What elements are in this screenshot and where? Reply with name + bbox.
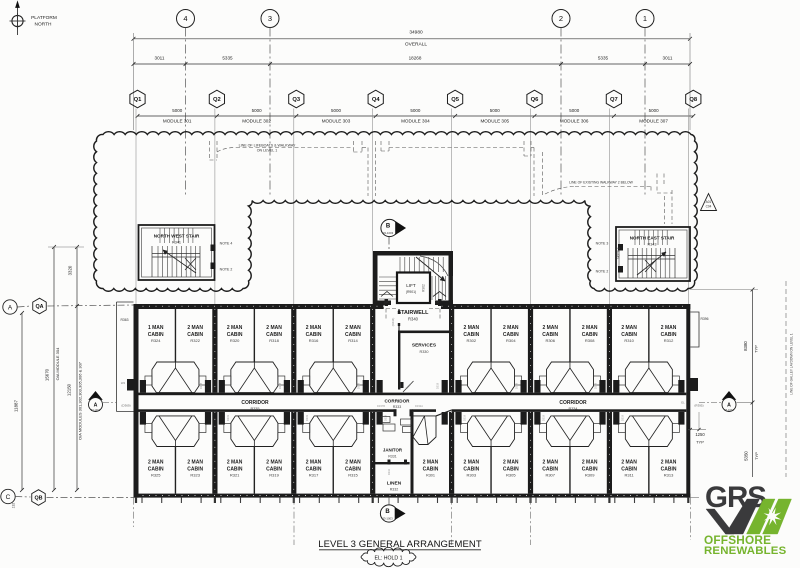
svg-text:CABIN: CABIN [503, 332, 519, 338]
svg-text:CABIN: CABIN [582, 332, 598, 338]
svg-text:CABIN: CABIN [463, 466, 479, 472]
svg-text:15670: 15670 [45, 368, 50, 381]
svg-text:R314: R314 [348, 338, 358, 343]
svg-text:2 MAN: 2 MAN [266, 460, 282, 466]
svg-text:R316: R316 [309, 338, 319, 343]
svg-text:R331: R331 [388, 455, 397, 459]
svg-text:ON LEVEL 1: ON LEVEL 1 [257, 149, 277, 153]
svg-text:W4: W4 [121, 381, 126, 385]
svg-text:MODULE 304: MODULE 304 [401, 119, 430, 124]
svg-text:CORRIDOR: CORRIDOR [241, 400, 269, 406]
svg-text:D337B: D337B [377, 404, 385, 408]
svg-text:C: C [6, 494, 11, 501]
svg-text:Q4: Q4 [372, 97, 381, 103]
svg-text:R303: R303 [467, 473, 477, 478]
svg-text:5000: 5000 [331, 108, 342, 113]
svg-text:CABIN: CABIN [306, 466, 322, 472]
svg-text:LINE OF EXISTING WALKWAY 2 BEL: LINE OF EXISTING WALKWAY 2 BELOW [569, 181, 633, 185]
svg-text:NORTH EAST STAIR: NORTH EAST STAIR [630, 236, 675, 241]
svg-text:CABIN: CABIN [503, 466, 519, 472]
svg-text:5350: 5350 [744, 451, 749, 461]
svg-text:PLATFORM: PLATFORM [31, 15, 57, 21]
svg-text:A01: A01 [706, 200, 712, 204]
svg-text:R333: R333 [393, 405, 402, 409]
svg-text:R323: R323 [190, 473, 200, 478]
svg-text:R902: R902 [422, 284, 426, 292]
svg-text:2: 2 [559, 14, 563, 23]
svg-text:2 MAN: 2 MAN [503, 325, 519, 331]
svg-text:R308: R308 [585, 338, 595, 343]
svg-text:R332: R332 [390, 488, 399, 492]
svg-text:2 MAN: 2 MAN [621, 460, 637, 466]
svg-text:R312: R312 [664, 338, 674, 343]
svg-text:R324: R324 [151, 338, 161, 343]
svg-text:C04: C04 [706, 205, 712, 209]
svg-text:NOTE 1: NOTE 1 [617, 247, 621, 259]
svg-text:CABIN: CABIN [463, 332, 479, 338]
svg-text:R340: R340 [408, 317, 419, 322]
svg-text:MODULE 305: MODULE 305 [480, 119, 509, 124]
svg-text:R325: R325 [151, 473, 161, 478]
svg-text:3011: 3011 [663, 56, 673, 61]
svg-text:2 MAN: 2 MAN [542, 325, 558, 331]
svg-text:NORTH: NORTH [35, 22, 53, 28]
svg-text:2 MAN: 2 MAN [464, 325, 480, 331]
svg-text:R306: R306 [545, 338, 555, 343]
svg-text:O/A MODULE 304: O/A MODULE 304 [55, 347, 60, 380]
svg-text:CABIN: CABIN [542, 466, 558, 472]
svg-text:2 MAN: 2 MAN [227, 325, 243, 331]
svg-text:R319: R319 [269, 473, 279, 478]
svg-text:SERVICES: SERVICES [412, 343, 437, 349]
svg-text:R301: R301 [426, 474, 435, 478]
svg-text:3011: 3011 [155, 56, 165, 61]
svg-text:Q5: Q5 [451, 97, 460, 103]
svg-text:R322: R322 [190, 338, 200, 343]
svg-text:CABIN: CABIN [266, 466, 282, 472]
svg-text:33-1003: 33-1003 [382, 517, 393, 521]
svg-text:132: 132 [12, 503, 16, 509]
svg-text:D319: D319 [305, 414, 309, 421]
svg-text:5335: 5335 [598, 56, 609, 61]
svg-text:5335: 5335 [222, 56, 233, 61]
svg-text:R396: R396 [700, 317, 708, 321]
svg-text:2 MAN: 2 MAN [148, 460, 164, 466]
svg-text:MODULE 301: MODULE 301 [163, 119, 192, 124]
svg-text:JANITOR: JANITOR [383, 448, 403, 453]
svg-text:5000: 5000 [569, 108, 580, 113]
svg-text:R335: R335 [250, 407, 259, 411]
svg-text:Q7: Q7 [610, 97, 618, 103]
svg-text:Q1: Q1 [134, 97, 143, 103]
svg-text:D319: D319 [384, 414, 388, 421]
svg-text:D318: D318 [199, 382, 203, 389]
svg-text:R315: R315 [348, 473, 358, 478]
svg-text:D318: D318 [278, 382, 282, 389]
svg-text:NOTE 2: NOTE 2 [596, 270, 609, 274]
svg-text:R363: R363 [120, 318, 128, 322]
svg-text:CABIN: CABIN [187, 466, 203, 472]
svg-text:D318: D318 [593, 382, 597, 389]
svg-text:LINE OF LIFEBOATS & WALKWAY: LINE OF LIFEBOATS & WALKWAY [239, 144, 296, 148]
svg-text:2 MAN: 2 MAN [661, 460, 677, 466]
svg-text:Q3: Q3 [292, 97, 301, 103]
svg-text:(D369): (D369) [121, 404, 130, 408]
svg-text:33-1003: 33-1003 [383, 231, 394, 235]
svg-text:2 MAN: 2 MAN [187, 325, 203, 331]
svg-text:Q8: Q8 [689, 97, 698, 103]
svg-text:D318: D318 [436, 382, 440, 389]
svg-text:NOTE 3: NOTE 3 [596, 242, 609, 246]
svg-text:R302: R302 [467, 338, 477, 343]
svg-text:A: A [94, 403, 98, 409]
svg-text:(R395): (R395) [694, 404, 703, 408]
svg-text:MODULE 302: MODULE 302 [242, 119, 271, 124]
svg-text:R334: R334 [568, 407, 577, 411]
svg-text:R318: R318 [269, 338, 279, 343]
svg-text:R313: R313 [664, 473, 674, 478]
svg-text:2 MAN: 2 MAN [227, 460, 243, 466]
svg-text:CABIN: CABIN [621, 332, 637, 338]
svg-text:RENEWABLES: RENEWABLES [704, 545, 787, 557]
svg-text:33-1003: 33-1003 [724, 409, 734, 412]
svg-text:CABIN: CABIN [661, 332, 677, 338]
svg-text:CABIN: CABIN [423, 466, 439, 472]
svg-text:2 MAN: 2 MAN [582, 460, 598, 466]
svg-text:R341: R341 [172, 241, 181, 245]
svg-text:12150: 12150 [67, 383, 72, 396]
svg-text:R330: R330 [419, 350, 428, 354]
svg-text:LINEN: LINEN [387, 481, 402, 487]
svg-text:5000: 5000 [252, 108, 263, 113]
svg-text:CABIN: CABIN [148, 466, 164, 472]
svg-text:TYP: TYP [754, 452, 759, 460]
svg-text:5000: 5000 [649, 108, 660, 113]
svg-text:2 MAN: 2 MAN [306, 460, 322, 466]
svg-text:2 MAN: 2 MAN [266, 325, 282, 331]
svg-text:R309: R309 [585, 473, 595, 478]
svg-text:TYP: TYP [696, 440, 704, 445]
svg-text:STAIRWELL: STAIRWELL [398, 310, 430, 316]
svg-text:B: B [386, 224, 391, 230]
svg-text:2 MAN: 2 MAN [187, 460, 203, 466]
svg-text:CABIN: CABIN [148, 332, 164, 338]
svg-text:1 MAN: 1 MAN [148, 325, 164, 331]
svg-text:2 MAN: 2 MAN [306, 325, 322, 331]
svg-text:(D434): (D434) [391, 318, 395, 327]
svg-text:CABIN: CABIN [266, 332, 282, 338]
svg-text:11887: 11887 [14, 400, 19, 412]
svg-text:D319: D319 [463, 414, 467, 421]
svg-text:QA: QA [35, 304, 43, 310]
svg-text:3320: 3320 [68, 265, 73, 275]
svg-text:CORRIDOR: CORRIDOR [559, 400, 587, 406]
svg-text:2 MAN: 2 MAN [582, 325, 598, 331]
svg-text:5000: 5000 [172, 108, 183, 113]
svg-text:A: A [727, 403, 731, 409]
svg-text:CABIN: CABIN [227, 332, 243, 338]
svg-text:R310: R310 [624, 338, 634, 343]
svg-text:34980: 34980 [409, 30, 423, 36]
svg-text:EL: EL [681, 401, 685, 405]
svg-text:5000: 5000 [410, 108, 421, 113]
svg-text:D332A: D332A [415, 404, 423, 408]
svg-text:D332: D332 [387, 468, 391, 475]
svg-text:R320: R320 [230, 338, 240, 343]
svg-text:CABIN: CABIN [187, 332, 203, 338]
svg-text:R304: R304 [506, 338, 516, 343]
svg-text:D318: D318 [515, 382, 519, 389]
svg-text:1250: 1250 [695, 432, 705, 437]
svg-text:A: A [8, 305, 13, 312]
svg-text:TYP: TYP [754, 345, 759, 353]
svg-text:NOTE 4: NOTE 4 [220, 242, 233, 246]
svg-text:CABIN: CABIN [621, 466, 637, 472]
svg-text:R311: R311 [624, 473, 634, 478]
svg-text:3: 3 [268, 14, 272, 23]
svg-text:B: B [385, 509, 390, 515]
svg-text:2 MAN: 2 MAN [345, 460, 361, 466]
svg-text:MODULE 306: MODULE 306 [560, 119, 589, 124]
svg-text:CORRIDOR: CORRIDOR [384, 399, 410, 404]
svg-text:CABIN: CABIN [542, 332, 558, 338]
svg-text:CABIN: CABIN [345, 332, 361, 338]
svg-text:2 MAN: 2 MAN [621, 325, 637, 331]
svg-text:MODULE 307: MODULE 307 [639, 119, 668, 124]
svg-text:QB: QB [34, 495, 42, 501]
svg-text:2 MAN: 2 MAN [423, 460, 439, 466]
svg-text:UP: UP [384, 301, 388, 305]
svg-text:MODULE 303: MODULE 303 [322, 119, 351, 124]
svg-text:LINE OF GALLEY LAYDOWN ON LEVE: LINE OF GALLEY LAYDOWN ON LEVEL 1 [790, 333, 794, 395]
svg-text:UP: UP [435, 301, 439, 305]
svg-text:OVERALL: OVERALL [405, 42, 427, 48]
svg-text:2 MAN: 2 MAN [503, 460, 519, 466]
svg-text:Q6: Q6 [531, 97, 540, 103]
svg-text:D319: D319 [542, 414, 546, 421]
svg-text:D319: D319 [226, 414, 230, 421]
svg-text:D318: D318 [357, 382, 361, 389]
svg-text:2 MAN: 2 MAN [542, 460, 558, 466]
svg-text:CABIN: CABIN [661, 466, 677, 472]
svg-text:D319: D319 [620, 414, 624, 421]
svg-text:8380: 8380 [743, 341, 748, 351]
svg-text:2 MAN: 2 MAN [464, 460, 480, 466]
svg-text:5000: 5000 [490, 108, 501, 113]
svg-text:LIFT: LIFT [406, 283, 416, 288]
svg-text:CABIN: CABIN [306, 332, 322, 338]
svg-text:R307: R307 [545, 473, 555, 478]
svg-text:R321: R321 [230, 473, 240, 478]
svg-text:1: 1 [643, 14, 647, 23]
svg-text:2 MAN: 2 MAN [661, 325, 677, 331]
svg-text:CABIN: CABIN [345, 466, 361, 472]
svg-text:2 MAN: 2 MAN [345, 325, 361, 331]
svg-text:18268: 18268 [409, 56, 422, 61]
svg-text:O/A MODULES 301,302,303,305,30: O/A MODULES 301,302,303,305,306 & 307 [78, 361, 83, 440]
svg-text:NOTE 2: NOTE 2 [220, 268, 233, 272]
svg-text:33-1003: 33-1003 [91, 409, 101, 412]
svg-text:4: 4 [183, 14, 187, 23]
svg-text:CABIN: CABIN [227, 466, 243, 472]
svg-text:R305: R305 [506, 473, 516, 478]
svg-text:R317: R317 [309, 473, 319, 478]
svg-text:(R901): (R901) [406, 290, 416, 294]
svg-text:EL: HOLD 1: EL: HOLD 1 [375, 555, 403, 561]
svg-text:CABIN: CABIN [582, 466, 598, 472]
svg-text:Q2: Q2 [213, 97, 221, 103]
